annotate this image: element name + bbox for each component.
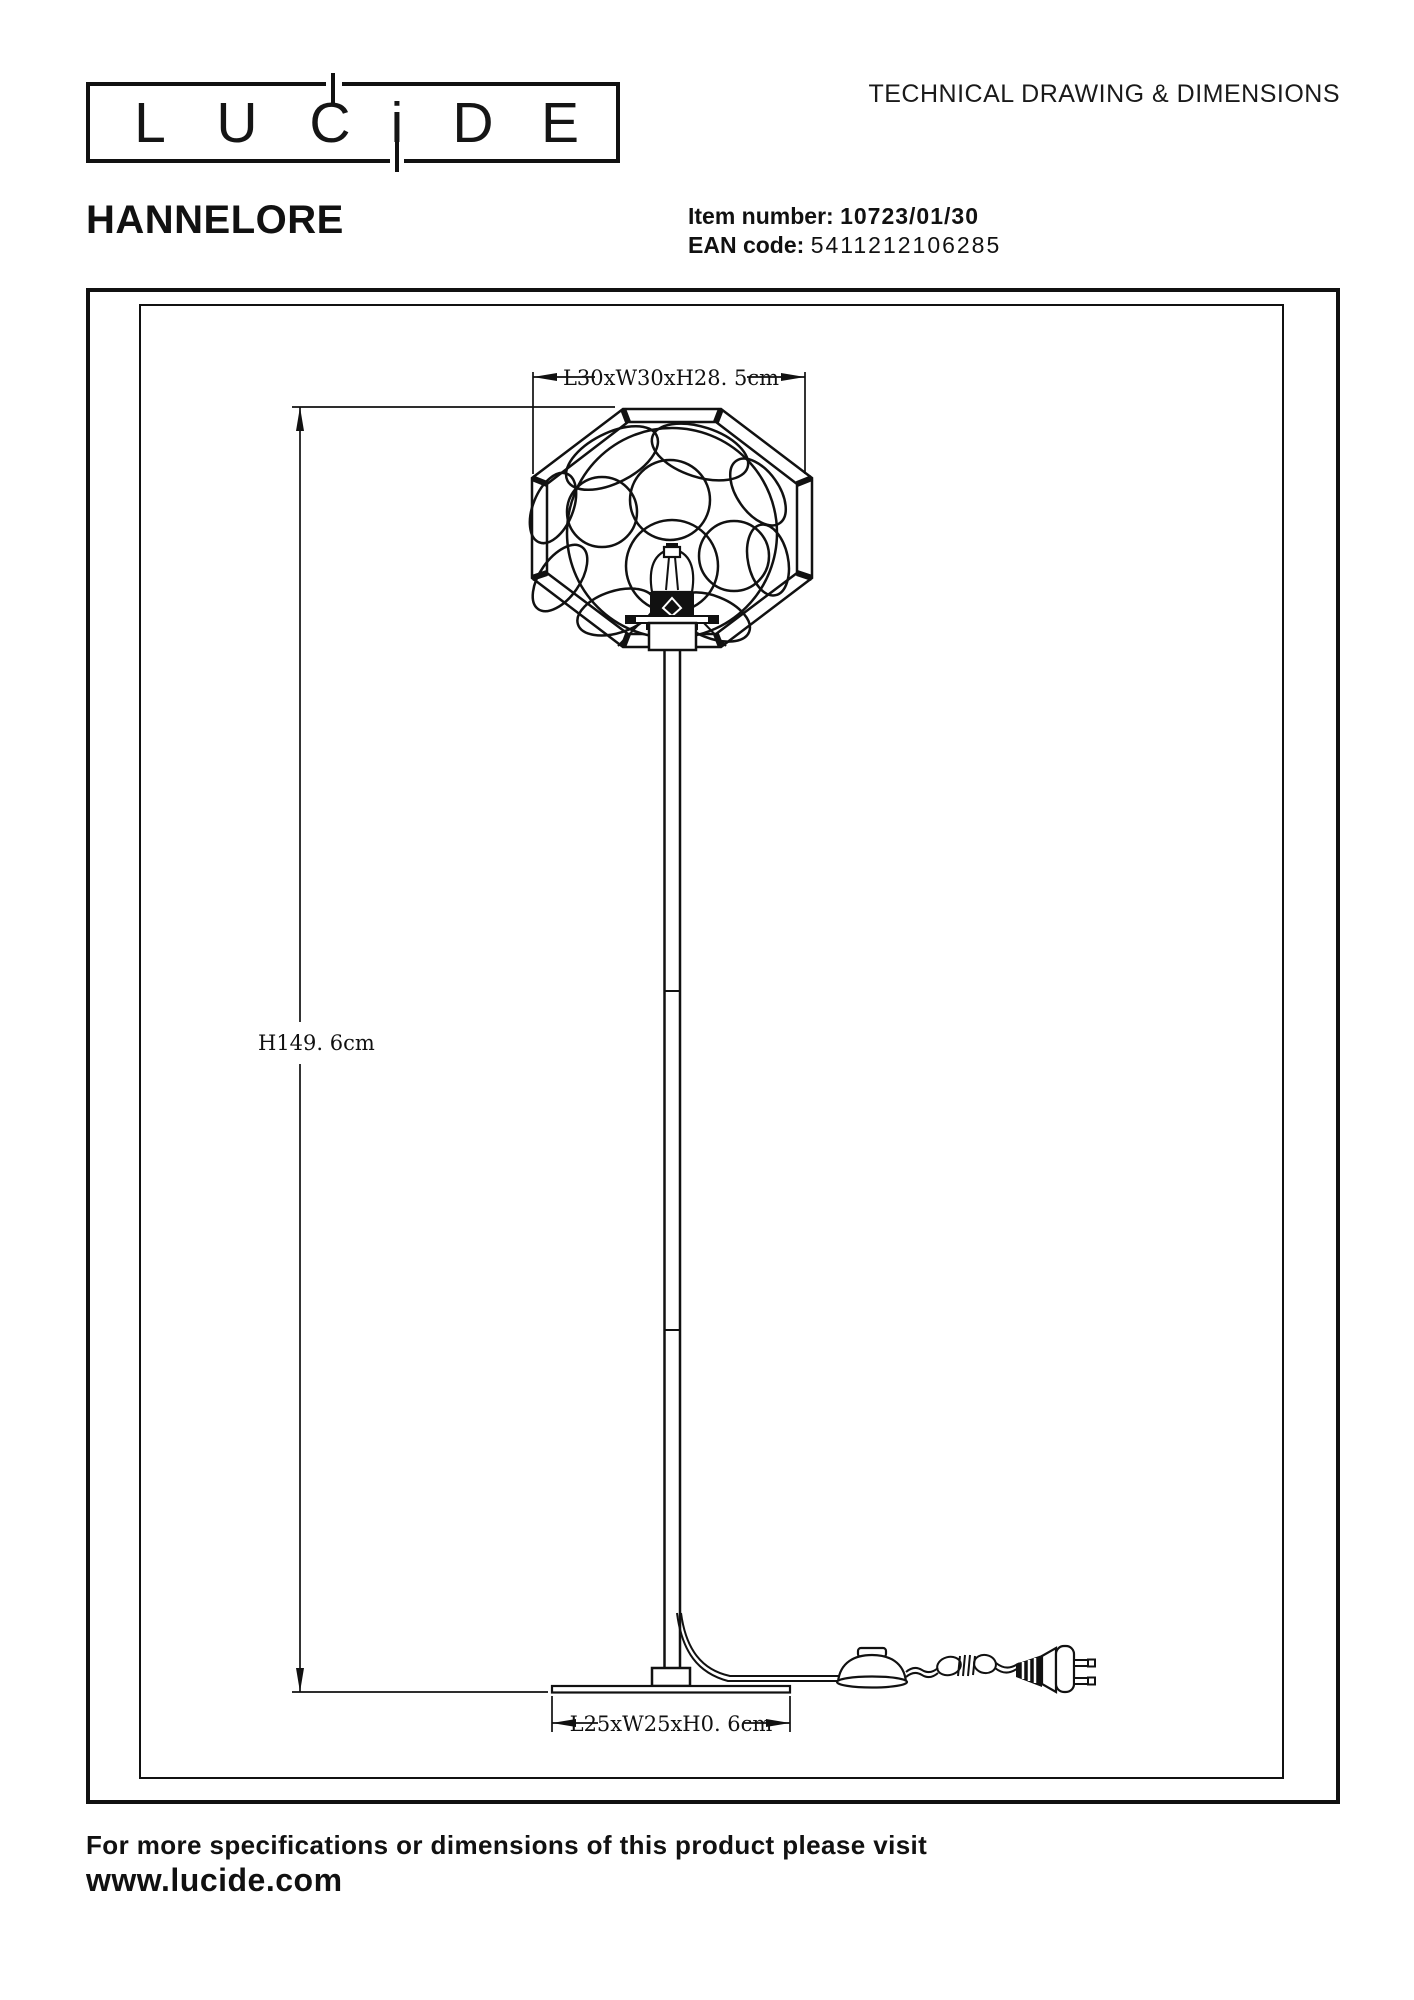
technical-drawing-canvas: L U C i D E (0, 0, 1414, 2000)
logo-letter: C (309, 91, 350, 155)
height-dimension-label: H149. 6cm (258, 1031, 375, 1055)
power-plug (1016, 1646, 1095, 1692)
brand-logo: L U C i D E (88, 73, 618, 172)
bulb-socket (650, 592, 694, 618)
logo-letter: D (452, 91, 493, 155)
base-mount-block (652, 1668, 690, 1686)
dimension-base: L25xW25xH0. 6cm (552, 1696, 790, 1736)
plug-prong (1074, 1660, 1088, 1666)
foot-switch (837, 1648, 907, 1688)
cord-knot (935, 1653, 997, 1678)
base-plate (552, 1686, 790, 1693)
shade-dimension-label: L30xW30xH28. 5cm (563, 366, 779, 390)
plug-prong (1074, 1678, 1088, 1684)
logo-letter: i (391, 91, 404, 155)
shade-collar (649, 623, 696, 650)
logo-letter: E (541, 91, 579, 155)
logo-letter: L (134, 91, 166, 155)
base-dimension-label: L25xW25xH0. 6cm (570, 1712, 773, 1736)
logo-letter: U (216, 91, 257, 155)
spec-sheet-page: TECHNICAL DRAWING & DIMENSIONS HANNELORE… (0, 0, 1414, 2000)
lamp-pole (664, 650, 680, 1670)
